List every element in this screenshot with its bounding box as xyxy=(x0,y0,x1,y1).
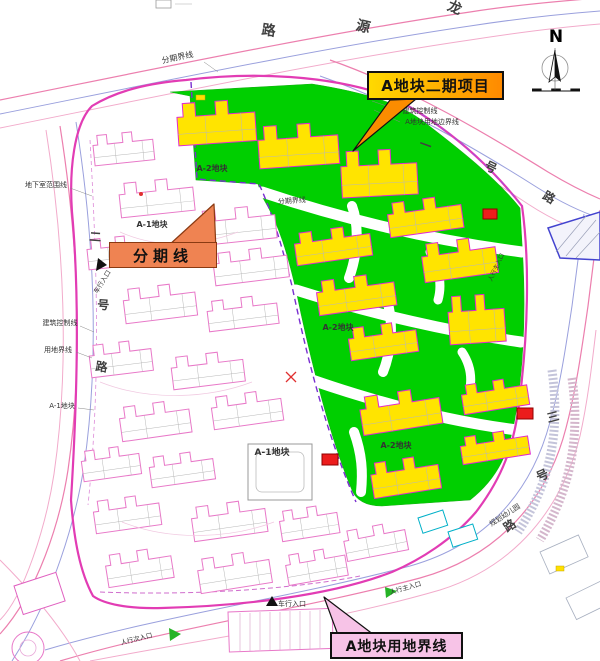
building-existing xyxy=(342,520,409,561)
map-label: A-2地块 xyxy=(196,163,228,173)
map-label: 车行入口 xyxy=(278,599,306,608)
map-label: 号 xyxy=(534,466,551,485)
building-existing xyxy=(196,549,272,594)
map-label: A-1地块 xyxy=(49,401,75,410)
map-label: N xyxy=(549,27,563,47)
map-label: A-1地块 xyxy=(255,446,291,458)
building-existing xyxy=(206,293,279,331)
building-existing xyxy=(278,503,340,542)
map-label: 号 xyxy=(97,297,110,313)
map-label: 源 xyxy=(354,17,372,37)
site-plan-stage: N龙源路一号路二号路三号路分期界线建筑控制线A地块用地边界线分期界线A-2地块A… xyxy=(0,0,600,661)
map-label: 二 xyxy=(89,230,102,245)
map-label: 分期界线 xyxy=(161,49,194,65)
callout-phase-line: 分期线 xyxy=(109,242,217,268)
map-label: 路 xyxy=(261,21,278,40)
callout-phase2-project: A地块二期项目 xyxy=(367,71,504,100)
building-existing xyxy=(118,398,192,441)
building-existing xyxy=(122,281,198,324)
building-existing xyxy=(92,130,155,166)
map-label: A地块用地边界线 xyxy=(405,117,459,126)
building-existing xyxy=(284,546,348,586)
building-existing xyxy=(92,493,162,534)
map-label: 用地界线 xyxy=(44,345,72,354)
map-label: 车行入口 xyxy=(91,268,112,295)
building-existing xyxy=(212,245,289,286)
building-existing xyxy=(80,444,142,482)
building-existing xyxy=(148,449,216,488)
map-label: A-2地块 xyxy=(380,440,412,450)
building-existing xyxy=(190,498,268,542)
building-existing xyxy=(210,388,284,429)
map-label: A-2地块 xyxy=(322,322,354,332)
building-existing xyxy=(170,349,245,390)
map-label: 地下室范围线 xyxy=(25,180,67,189)
building-existing xyxy=(118,176,195,218)
map-label: 路 xyxy=(540,188,559,207)
building-existing xyxy=(104,546,174,588)
map-label: A-1地块 xyxy=(136,219,168,229)
map-label: 建筑控制线 xyxy=(403,106,438,115)
map-label: 建筑控制线 xyxy=(43,318,78,327)
callout-plot-boundary-line: A地块用地界线 xyxy=(330,632,463,659)
site-plan-map: N龙源路一号路二号路三号路分期界线建筑控制线A地块用地边界线分期界线A-2地块A… xyxy=(0,0,600,661)
map-label: 人行次入口 xyxy=(120,630,154,647)
